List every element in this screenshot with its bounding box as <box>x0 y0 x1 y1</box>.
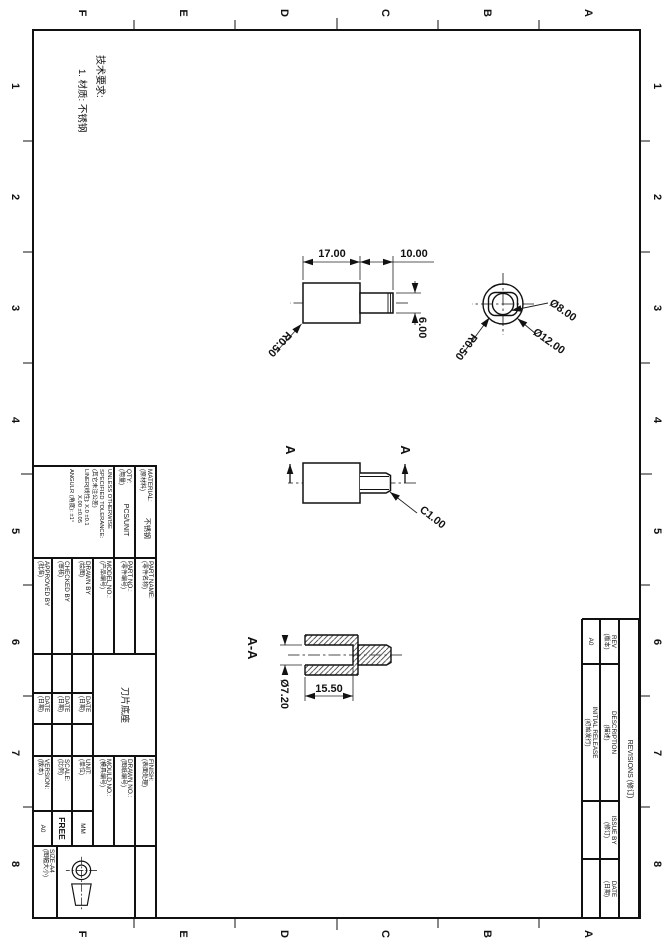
zone-letter-right-b: B <box>481 930 493 938</box>
drawn-no-cell: DRAWN NO.:(图纸编号) <box>114 756 135 846</box>
front-shaft-length-dim: 10.00 <box>400 248 428 260</box>
zone-number-top-1: 1 <box>651 83 663 89</box>
checked-date-value-cell <box>52 724 72 756</box>
tolerance-cell: UNLESS OTHERWISE SPECIFIED TOLERANCE: (其… <box>32 466 114 558</box>
front-length-dim: 17.00 <box>318 248 346 260</box>
finish-cell: FINISH:(表面处理) <box>135 756 156 846</box>
zone-number-bottom-4: 4 <box>9 417 21 423</box>
zone-number-top-8: 8 <box>651 861 663 867</box>
zone-number-bottom-8: 8 <box>9 861 21 867</box>
section-arrow-label-bottom: A <box>283 445 298 455</box>
section-view: Ø7.20 15.50 A-A <box>245 635 402 709</box>
zone-number-top-5: 5 <box>651 528 663 534</box>
tech-requirements-item: 1. 材质: 不锈钢 <box>76 69 90 132</box>
qty-cell: QTY:(用量) PCS/UNIT <box>114 466 135 558</box>
drawn-date-value-cell <box>72 724 93 756</box>
revision-row-issue-by <box>581 801 600 859</box>
zone-number-top-6: 6 <box>651 639 663 645</box>
zone-letter-left-f: F <box>76 10 88 17</box>
part-name-value: 刀片底座 <box>93 654 156 756</box>
end-outer-dim: Ø12.00 <box>530 326 566 357</box>
section-arrow-label-top: A <box>398 445 413 455</box>
checked-date-label: DATE(日期) <box>52 693 72 724</box>
side-view: A A C1.00 <box>283 445 448 531</box>
front-view: 17.00 10.00 6.00 R0.50 <box>265 248 434 359</box>
section-bore-dia-dim: Ø7.20 <box>278 679 290 709</box>
zone-number-bottom-6: 6 <box>9 639 21 645</box>
rev-header: REV(版本) <box>600 619 619 664</box>
projection-symbol-cell <box>57 846 135 919</box>
title-block: MATERIAL:(原材料) 不锈钢 QTY:(用量) PCS/UNIT UNL… <box>33 465 157 918</box>
section-title: A-A <box>245 636 260 660</box>
drawn-by-signature-cell <box>72 654 93 693</box>
material-cell: MATERIAL:(原材料) 不锈钢 <box>135 466 156 558</box>
end-view: Ø8.00 Ø12.00 R0.50 <box>452 273 578 362</box>
section-depth-dim: 15.50 <box>315 683 343 695</box>
checked-by-signature-cell <box>52 654 72 693</box>
part-no-cell: PART NO.:(零件编号) <box>114 558 135 654</box>
end-bore-dim: Ø8.00 <box>547 297 578 324</box>
zone-number-bottom-5: 5 <box>9 528 21 534</box>
side-chamfer-dim: C1.00 <box>417 504 448 532</box>
revision-row-date <box>581 859 600 919</box>
version-value: A0 <box>32 811 52 846</box>
approved-by-cell: APPROVED BY(批准) <box>32 558 52 654</box>
front-shaft-dia-dim: 6.00 <box>416 317 428 338</box>
drawing-sheet: Ø8.00 Ø12.00 R0.50 <box>0 0 672 950</box>
approved-date-value-cell <box>32 724 52 756</box>
zone-letter-left-e: E <box>177 9 189 16</box>
zone-number-top-7: 7 <box>651 750 663 756</box>
drawn-by-cell: DRAWN BY(绘图) <box>72 558 93 654</box>
zone-number-bottom-3: 3 <box>9 305 21 311</box>
zone-number-top-4: 4 <box>651 417 663 423</box>
zone-letter-left-d: D <box>278 9 290 17</box>
zone-letter-left-a: A <box>582 9 594 17</box>
end-radius-dim: R0.50 <box>452 331 479 362</box>
unit-cell: UNIT:(单位) <box>72 756 93 811</box>
version-cell: VERSION:(版本) <box>32 756 52 811</box>
zone-number-bottom-2: 2 <box>9 194 21 200</box>
zone-letter-right-c: C <box>379 930 391 938</box>
zone-letter-right-d: D <box>278 930 290 938</box>
projection-symbol-icon <box>59 849 133 916</box>
zone-letter-right-e: E <box>177 930 189 937</box>
size-cell: SIZE-A4(图幅大小) <box>32 846 57 919</box>
revision-table: REVISIONS (修订) REV(版本) DESCRIPTION(描述) I… <box>582 618 640 918</box>
unit-value: MM <box>72 811 93 846</box>
mould-no-cell: MOULD NO.:(模具编号) <box>93 756 114 846</box>
model-no-cell: MODEL NO.:(产品编号) <box>93 558 114 654</box>
zone-number-top-2: 2 <box>651 194 663 200</box>
approved-date-label: DATE(日期) <box>32 693 52 724</box>
zone-letter-left-c: C <box>379 9 391 17</box>
qty-value: PCS/UNIT <box>120 485 128 555</box>
date-header: DATE(日期) <box>600 859 619 919</box>
drawing-page: Ø8.00 Ø12.00 R0.50 <box>0 0 672 950</box>
zone-letter-right-a: A <box>582 930 594 938</box>
zone-number-bottom-7: 7 <box>9 750 21 756</box>
issue-by-header: ISSUE BY(修订) <box>600 801 619 859</box>
front-radius-dim: R0.50 <box>265 329 294 359</box>
description-header: DESCRIPTION(描述) <box>600 664 619 801</box>
revisions-title: REVISIONS (修订) <box>619 619 639 919</box>
zone-letter-left-b: B <box>481 9 493 17</box>
zone-number-top-3: 3 <box>651 305 663 311</box>
zone-number-bottom-1: 1 <box>9 83 21 89</box>
part-name-cell: PART NAME:(零件名称) <box>135 558 156 654</box>
scale-cell: SCALE:(比例) <box>52 756 72 811</box>
revision-row-description: INITIAL RELEASE(初始发行) <box>581 664 600 801</box>
approved-by-signature-cell <box>32 654 52 693</box>
tech-requirements-heading: 技术要求: <box>94 55 109 98</box>
material-value: 不锈钢 <box>141 502 149 555</box>
scale-value: FREE <box>52 811 72 846</box>
zone-letter-right-f: F <box>76 931 88 938</box>
drawn-date-label: DATE(日期) <box>72 693 93 724</box>
checked-by-cell: CHECKED BY(审核) <box>52 558 72 654</box>
revision-row-rev: A0 <box>581 619 600 664</box>
finish-value-cell <box>135 846 156 919</box>
